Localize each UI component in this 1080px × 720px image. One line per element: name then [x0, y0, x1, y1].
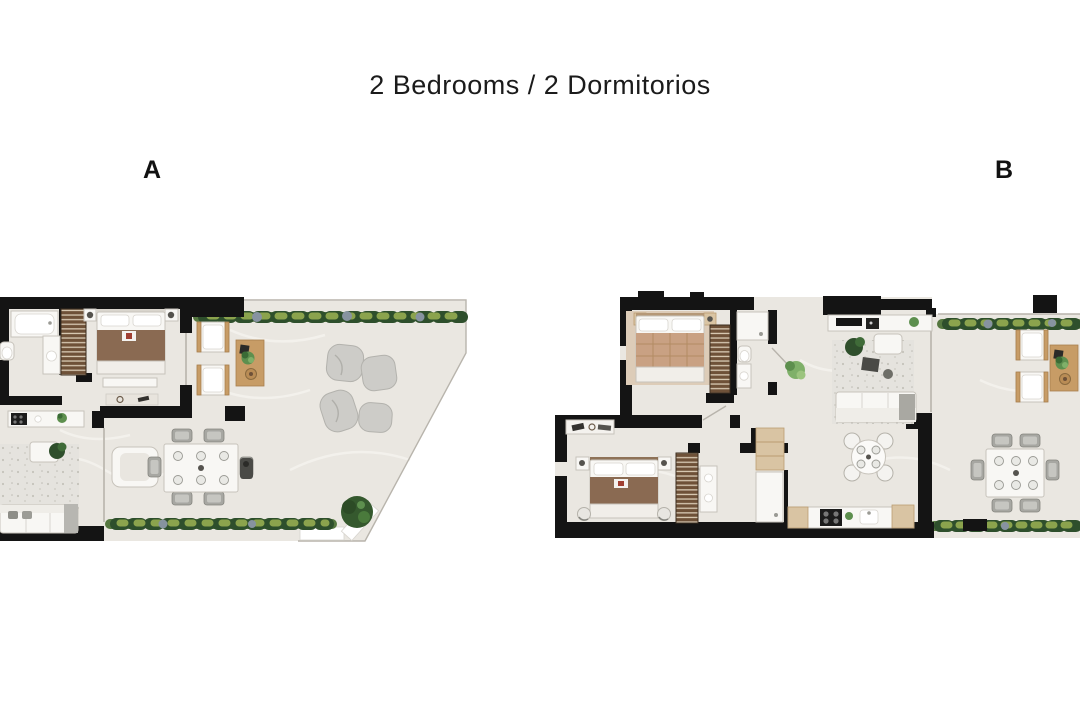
- side-table: [883, 369, 893, 379]
- toilet: [0, 342, 14, 360]
- lounge-chair: [197, 365, 229, 395]
- bbq-grill: [240, 458, 253, 479]
- plan-a-label: A: [143, 156, 161, 185]
- sofa-chaise: [899, 394, 915, 420]
- bathroom-vanity: [737, 364, 751, 388]
- plan-b-label: B: [995, 156, 1013, 185]
- shower: [756, 472, 783, 522]
- tall-cabinets: [756, 428, 784, 470]
- plant: [845, 512, 853, 520]
- wardrobe-b1: [710, 325, 730, 393]
- lounge-chair: [1016, 330, 1048, 360]
- bed-bench: [103, 378, 157, 387]
- kitchen-sink: [860, 510, 878, 524]
- wardrobe-b2: [676, 453, 698, 523]
- throw-pillow: [8, 511, 18, 519]
- dining-chair: [1020, 499, 1040, 512]
- tree: [341, 496, 373, 528]
- dining-chair: [148, 457, 161, 477]
- floor-plan-a: [0, 288, 472, 565]
- lounge-chair: [1016, 372, 1048, 402]
- dining-chair: [172, 429, 192, 442]
- bedroom-b1: [626, 311, 716, 385]
- double-bed: [636, 313, 704, 382]
- dining-chair: [992, 434, 1012, 447]
- tv: [836, 318, 862, 326]
- lounge-chair: [197, 322, 229, 352]
- plant: [909, 317, 919, 327]
- sofa: [0, 504, 78, 533]
- dining-chair: [1020, 434, 1040, 447]
- terrace-pillar: [225, 406, 245, 421]
- toilet: [738, 346, 751, 362]
- lamp: [661, 460, 667, 466]
- terrace-wall-block: [963, 519, 987, 531]
- sofa-chaise: [64, 504, 78, 533]
- media-box: [866, 318, 879, 329]
- cooktop: [11, 413, 27, 425]
- armchair: [874, 334, 902, 354]
- terrace-pillar: [1033, 295, 1057, 313]
- bathroom-vanity: [43, 336, 60, 374]
- terrace-hedge-bottom: [110, 520, 332, 529]
- accent-pillow: [618, 481, 624, 486]
- accent-pillow: [126, 333, 132, 339]
- dining-chair: [1046, 460, 1059, 480]
- breakfast-table-set: [844, 433, 893, 481]
- desk: [566, 420, 614, 434]
- dining-chair: [172, 492, 192, 505]
- kitchen-counter-a: [8, 411, 84, 427]
- wardrobe-a: [61, 309, 86, 375]
- lamp: [707, 316, 713, 322]
- dining-chair: [204, 429, 224, 442]
- lamp: [87, 312, 93, 318]
- lamp: [168, 312, 174, 318]
- throw-pillow: [22, 511, 32, 519]
- sofa: [836, 392, 916, 422]
- terrace-hedge-top: [942, 319, 1080, 329]
- low-console: [106, 394, 158, 405]
- coffee-table: [861, 357, 880, 372]
- living-room-a: [0, 442, 79, 533]
- lamp: [579, 460, 585, 466]
- double-bed: [590, 457, 658, 518]
- shower: [737, 312, 768, 340]
- terrace-hedge-bottom: [934, 522, 1080, 530]
- bathroom-vanity: [700, 466, 717, 512]
- bathroom-b2: [700, 466, 717, 512]
- dining-chair: [204, 492, 224, 505]
- floor-plan-b: [555, 288, 1080, 550]
- floorplan-page: 2 Bedrooms / 2 Dormitorios A B: [0, 0, 1080, 720]
- dining-chair: [971, 460, 984, 480]
- dining-chair: [992, 499, 1012, 512]
- kitchen-counter: [788, 505, 914, 528]
- page-title: 2 Bedrooms / 2 Dormitorios: [0, 70, 1080, 101]
- kitchen-sink: [35, 416, 41, 422]
- cooktop: [820, 509, 842, 526]
- double-bed: [97, 309, 165, 374]
